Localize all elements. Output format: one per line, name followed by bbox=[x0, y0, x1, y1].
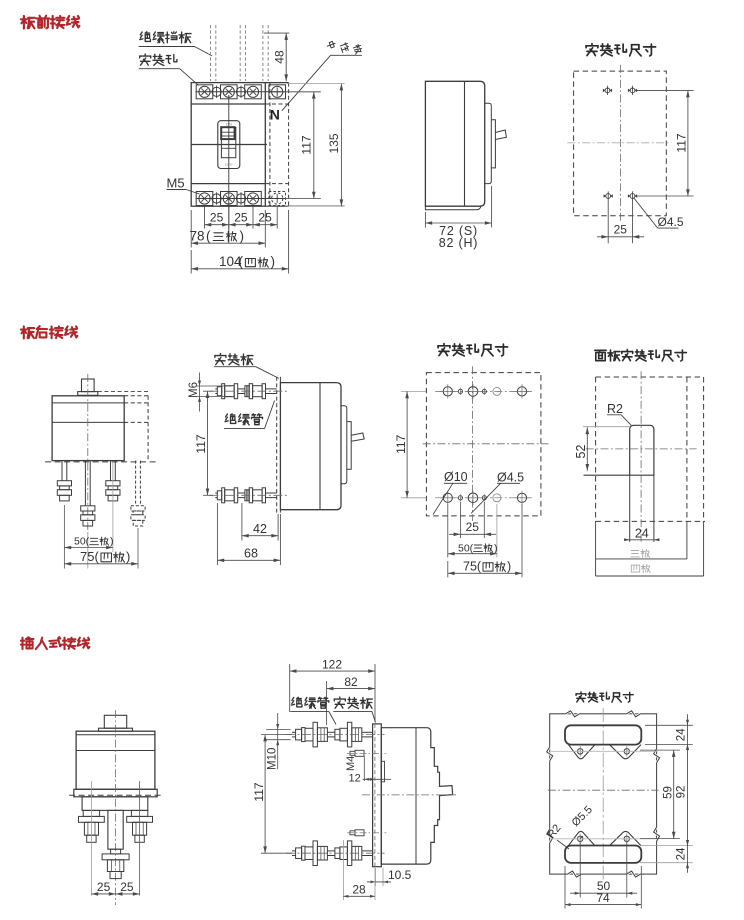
svg-text:M10: M10 bbox=[267, 748, 279, 770]
svg-text:ON: ON bbox=[226, 121, 232, 126]
svg-text:24: 24 bbox=[676, 728, 688, 741]
svg-text:): ) bbox=[494, 542, 498, 554]
svg-text:(: ( bbox=[239, 254, 244, 269]
svg-text:Ø4.5: Ø4.5 bbox=[658, 215, 684, 229]
svg-text:74: 74 bbox=[596, 891, 610, 905]
svg-text:Ø4.5: Ø4.5 bbox=[497, 471, 524, 485]
svg-text:): ) bbox=[126, 549, 130, 564]
svg-text:): ) bbox=[110, 536, 114, 548]
svg-text:25: 25 bbox=[466, 520, 480, 534]
svg-text:): ) bbox=[271, 254, 276, 269]
svg-text:): ) bbox=[240, 228, 245, 243]
svg-text:82 (H): 82 (H) bbox=[439, 236, 479, 250]
svg-text:48: 48 bbox=[273, 50, 287, 64]
svg-text:10.5: 10.5 bbox=[388, 868, 412, 882]
svg-text:117: 117 bbox=[300, 135, 314, 154]
svg-text:135: 135 bbox=[327, 133, 341, 153]
svg-text:122: 122 bbox=[322, 657, 342, 671]
svg-text:25: 25 bbox=[210, 211, 224, 225]
svg-text:117: 117 bbox=[394, 434, 408, 453]
svg-text:50(: 50( bbox=[458, 542, 474, 554]
svg-text:117: 117 bbox=[674, 133, 688, 152]
svg-text:): ) bbox=[507, 560, 511, 574]
svg-text:59: 59 bbox=[663, 786, 675, 799]
svg-text:M4: M4 bbox=[345, 756, 357, 771]
svg-text:92: 92 bbox=[676, 786, 688, 799]
svg-text:24: 24 bbox=[635, 526, 649, 540]
svg-text:M5: M5 bbox=[167, 176, 185, 191]
svg-text:117: 117 bbox=[194, 434, 208, 453]
svg-text:12: 12 bbox=[349, 773, 361, 785]
svg-text:OFF: OFF bbox=[225, 162, 234, 167]
svg-text:N: N bbox=[270, 107, 280, 123]
svg-text:Ø10: Ø10 bbox=[444, 470, 468, 484]
svg-text:117: 117 bbox=[252, 782, 266, 801]
svg-text:25: 25 bbox=[234, 211, 248, 225]
svg-text:68: 68 bbox=[244, 546, 258, 560]
svg-text:(: ( bbox=[206, 228, 211, 243]
svg-text:50(: 50( bbox=[74, 536, 90, 548]
svg-text:52: 52 bbox=[574, 445, 588, 459]
svg-text:82: 82 bbox=[344, 675, 358, 689]
svg-text:R2: R2 bbox=[607, 402, 623, 416]
svg-text:75(: 75( bbox=[80, 549, 99, 564]
svg-text:42: 42 bbox=[253, 522, 267, 536]
svg-text:25: 25 bbox=[614, 223, 628, 237]
svg-text:75(: 75( bbox=[463, 560, 482, 574]
svg-text:24: 24 bbox=[676, 847, 688, 860]
svg-text:25: 25 bbox=[97, 880, 111, 894]
svg-text:M6: M6 bbox=[188, 382, 200, 398]
svg-text:28: 28 bbox=[352, 883, 366, 897]
svg-text:78: 78 bbox=[190, 228, 205, 243]
svg-text:25: 25 bbox=[120, 880, 134, 894]
